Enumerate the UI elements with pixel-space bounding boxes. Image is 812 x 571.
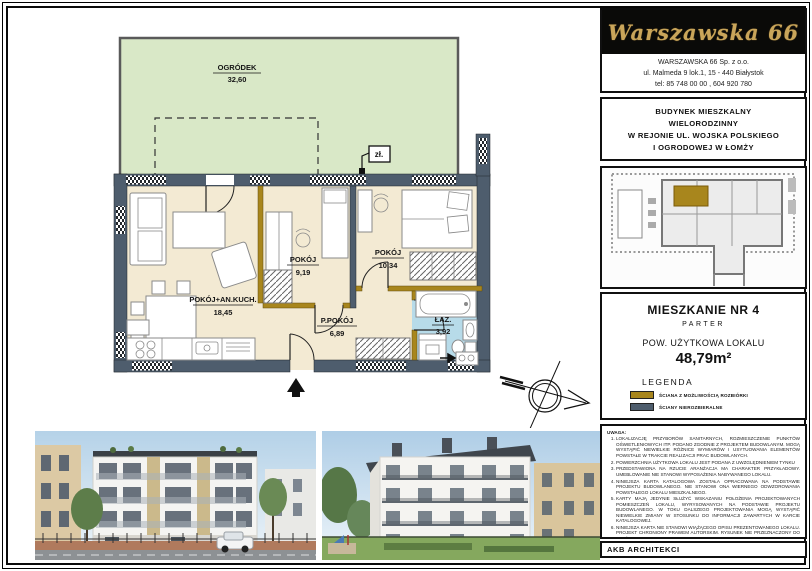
brand-card: Warszawska 66 WARSZAWSKA 66 Sp. z o.o. u…	[600, 8, 807, 93]
note-item: PRZEDSTAWIONA NA RZUCIE ARANŻACJA MA CHA…	[616, 466, 800, 477]
living-label: POKÓJ+AN.KUCH.	[189, 295, 256, 304]
apartment-title: MIESZKANIE NR 4	[602, 303, 805, 317]
wardrobe-room1	[264, 270, 292, 303]
sink	[463, 320, 477, 340]
legend-label-removable-wall: ŚCIANA Z MOŻLIWOŚCIĄ ROZBIÓRKI	[659, 393, 748, 398]
living-area-value: 18,45	[214, 308, 233, 317]
legend-label-structural-wall: ŚCIANY NIEROZBIERALNE	[659, 405, 723, 410]
window	[356, 362, 406, 371]
note-item: LOKALIZACJĘ PRZYBORÓW SANITARNYCH, ROZMI…	[616, 436, 800, 458]
window	[116, 206, 125, 234]
company-phone: tel: 85 748 00 00 , 604 920 780	[602, 80, 805, 91]
company-info: WARSZAWSKA 66 Sp. z o.o. ul. Malmeda 9 l…	[602, 54, 805, 91]
info-sidebar: Warszawska 66 WARSZAWSKA 66 Sp. z o.o. u…	[600, 8, 807, 558]
apartment-card: MIESZKANIE NR 4 PARTER POW. UŻYTKOWA LOK…	[600, 292, 807, 420]
washing-machine	[419, 334, 446, 360]
site-plan-card	[600, 166, 807, 289]
apartment-location-highlight	[674, 186, 708, 206]
window	[479, 138, 487, 164]
window	[116, 332, 125, 358]
note-item: KARTY MAJĄ JEDYNIE SŁUŻYĆ WSKAZANIU POŁO…	[616, 496, 800, 523]
garden-area: OGRÓDEK 32,60 zł.	[120, 38, 458, 180]
brand-banner: Warszawska 66	[602, 10, 805, 54]
project-line2: WIELORODZINNY	[602, 118, 805, 130]
sofa	[130, 193, 166, 265]
entrance-arrow-icon	[287, 378, 305, 397]
room2-label: POKÓJ	[375, 248, 401, 257]
architect-name: AKB ARCHITEKCI	[607, 545, 680, 554]
room2-area-value: 10,34	[379, 261, 399, 270]
apartment-area-label: POW. UŻYTKOWA LOKALU	[602, 338, 805, 348]
window	[412, 176, 456, 185]
brand-logo: Warszawska 66	[608, 20, 799, 45]
note-item: POWIERZCHNIA UŻYTKOWA LOKALU JEST PODANA…	[616, 460, 800, 465]
notes-list: LOKALIZACJĘ PRZYBORÓW SANITARNYCH, ROZMI…	[607, 436, 800, 539]
room1-label: POKÓJ	[290, 255, 316, 264]
architect-footer: AKB ARCHITEKCI	[600, 541, 807, 558]
notes-title: UWAGA:	[607, 430, 800, 435]
double-bed	[402, 190, 472, 248]
apartment-area-value: 48,79m²	[602, 350, 805, 367]
window	[132, 362, 172, 371]
legend-title: LEGENDA	[602, 377, 805, 387]
project-line1: BUDYNEK MIESZKALNY	[602, 106, 805, 118]
note-item: NINIEJSZA KARTA NIE STANOWI WIĄŻĄCEGO OP…	[616, 525, 800, 539]
legend-swatch-structural-wall	[630, 403, 654, 411]
window	[126, 176, 166, 185]
bathtub	[416, 291, 476, 317]
garden-label: OGRÓDEK	[218, 63, 257, 72]
floor-plan: OGRÓDEK 32,60 zł.	[8, 8, 596, 428]
window	[310, 176, 366, 185]
notes-card: UWAGA: LOKALIZACJĘ PRZYBORÓW SANITARNYCH…	[600, 424, 807, 539]
bath-area-value: 3,92	[436, 327, 451, 336]
legend-swatch-removable-wall	[630, 391, 654, 399]
note-item: NINIEJSZA KARTA KATALOGOWA ZOSTAŁA OPRAC…	[616, 479, 800, 495]
legend-item-structural: ŚCIANY NIEROZBIERALNE	[630, 403, 805, 411]
legend-item-removable: ŚCIANA Z MOŻLIWOŚCIĄ ROZBIÓRKI	[630, 391, 805, 399]
tap-label: zł.	[375, 150, 383, 159]
hall-area-value: 6,89	[330, 329, 345, 338]
building-rendering-street	[35, 431, 316, 560]
company-name: WARSZAWSKA 66 Sp. z o.o.	[602, 58, 805, 69]
hall-label: P.POKÓJ	[321, 316, 353, 325]
window	[250, 176, 270, 185]
bed-room1	[322, 188, 348, 258]
project-card: BUDYNEK MIESZKALNY WIELORODZINNY W REJON…	[600, 97, 807, 161]
wardrobe-hall	[356, 338, 410, 359]
site-plan-map	[602, 168, 805, 287]
apartment-floor: PARTER	[602, 321, 805, 328]
company-address: ul. Malmeda 9 lok.1, 15 - 440 Białystok	[602, 69, 805, 80]
north-arrow-icon	[500, 361, 589, 428]
bath-label: ŁAZ.	[435, 315, 452, 324]
project-line3: W REJONIE UL. WOJSKA POLSKIEGO	[602, 130, 805, 142]
coffee-table	[173, 212, 225, 248]
garden-area-value: 32,60	[228, 75, 247, 84]
room1-area-value: 9,19	[296, 268, 311, 277]
project-line4: I OGRODOWEJ W ŁOMŻY	[602, 142, 805, 154]
building-rendering-courtyard	[322, 431, 600, 560]
wardrobe-room2	[410, 252, 476, 280]
